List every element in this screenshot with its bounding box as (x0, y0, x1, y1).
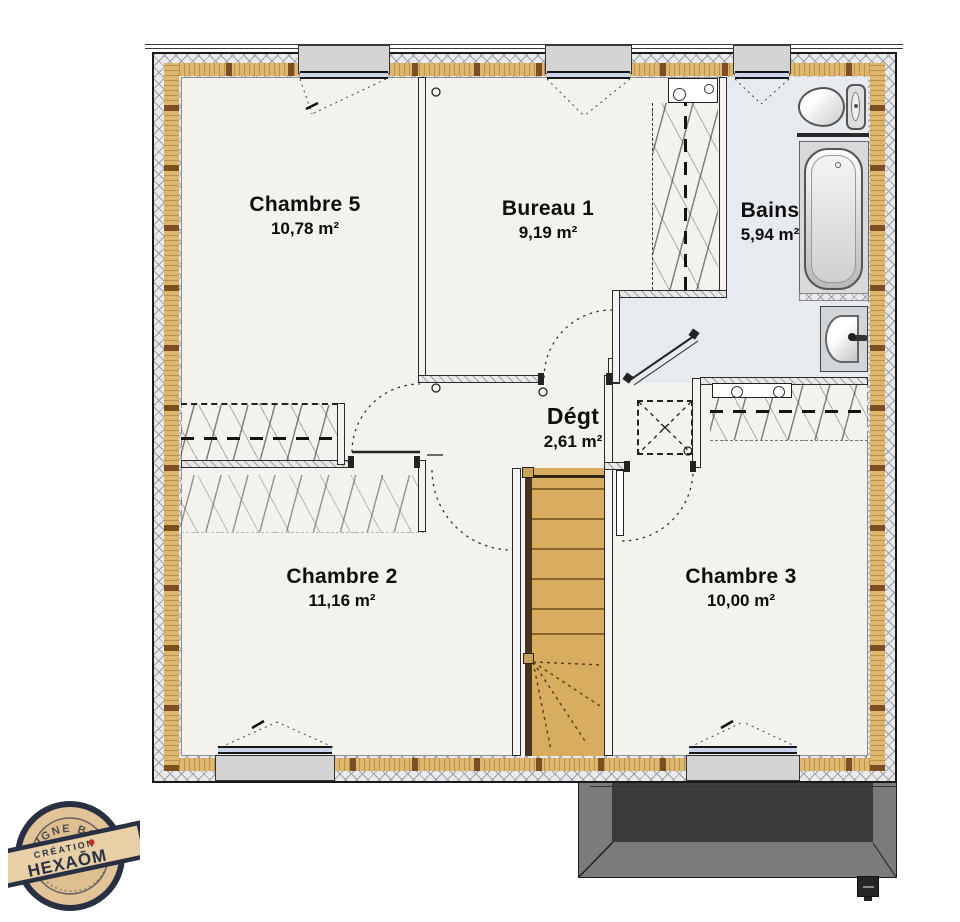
door-jamb (414, 456, 420, 468)
window-bureau-glass (547, 71, 630, 79)
door-jamb (606, 373, 612, 385)
toilet-icon (798, 84, 868, 130)
sink-icon (820, 306, 868, 372)
builder-stamp: LIGNE BOIS CRÉATION HEXAŌM (8, 798, 140, 916)
door-jamb (624, 461, 630, 472)
stairs-icon (521, 468, 604, 756)
room-area: 11,16 m² (222, 590, 462, 611)
newel-post (523, 653, 534, 664)
slope-zone-chambre2 (181, 475, 424, 533)
label-chambre2: Chambre 2 11,16 m² (222, 564, 462, 612)
lower-roof-flat (612, 782, 873, 842)
stair-entry-post (522, 467, 534, 478)
door-jamb (348, 456, 354, 468)
bathtub-ledge (799, 293, 869, 301)
floor-plan: Chambre 5 10,78 m² Bureau 1 9,19 m² Bain… (0, 0, 960, 922)
window-chambre2 (215, 755, 335, 781)
roof-overhang-bottom (590, 786, 897, 787)
door-leaf-chambre3 (616, 470, 624, 536)
wall-degt-chambre3 (692, 378, 701, 468)
door-jamb (538, 373, 544, 385)
label-bureau1: Bureau 1 9,19 m² (430, 196, 666, 244)
door-jamb (690, 461, 696, 472)
window-bains (733, 45, 791, 74)
room-name: Bains (690, 198, 850, 224)
radiator-chambre3 (712, 383, 792, 398)
wall-stub-closet (337, 403, 345, 465)
window-chambre5-glass (300, 71, 388, 79)
window-bureau (545, 45, 632, 74)
chimney-icon (857, 876, 879, 897)
wall-bains-lower-left (612, 290, 620, 383)
window-chambre3-glass (689, 746, 797, 754)
window-bains-glass (735, 71, 789, 79)
chimney-foot (864, 897, 872, 901)
wall-insulation-left (164, 63, 179, 771)
slope-zone-chambre5 (181, 403, 338, 460)
room-name: Chambre 3 (621, 564, 861, 590)
window-chambre3 (686, 755, 800, 781)
stair-wall-left (512, 468, 521, 756)
label-bains: Bains 5,94 m² (690, 198, 850, 246)
wall-bureau-degt (418, 375, 544, 383)
wall-chambre5-chambre2 (181, 460, 353, 468)
room-area: 9,19 m² (430, 222, 666, 243)
room-name: Bureau 1 (430, 196, 666, 222)
label-chambre5: Chambre 5 10,78 m² (185, 192, 425, 240)
wall-insulation-right (870, 63, 885, 771)
wall-bains-lower-top (612, 290, 727, 298)
radiator-bureau (668, 78, 718, 103)
wall-bureau-bains (719, 77, 727, 298)
room-area: 10,00 m² (621, 590, 861, 611)
window-chambre5 (298, 45, 390, 74)
wall-stub-chambre2 (418, 460, 426, 532)
room-name: Dégt (483, 402, 663, 431)
room-area: 10,78 m² (185, 218, 425, 239)
room-area: 2,61 m² (483, 431, 663, 452)
room-name: Chambre 5 (185, 192, 425, 218)
bath-shelf (797, 133, 869, 137)
room-name: Chambre 2 (222, 564, 462, 590)
window-chambre2-glass (218, 746, 332, 754)
label-degt: Dégt 2,61 m² (483, 402, 663, 452)
label-chambre3: Chambre 3 10,00 m² (621, 564, 861, 612)
room-area: 5,94 m² (690, 224, 850, 245)
